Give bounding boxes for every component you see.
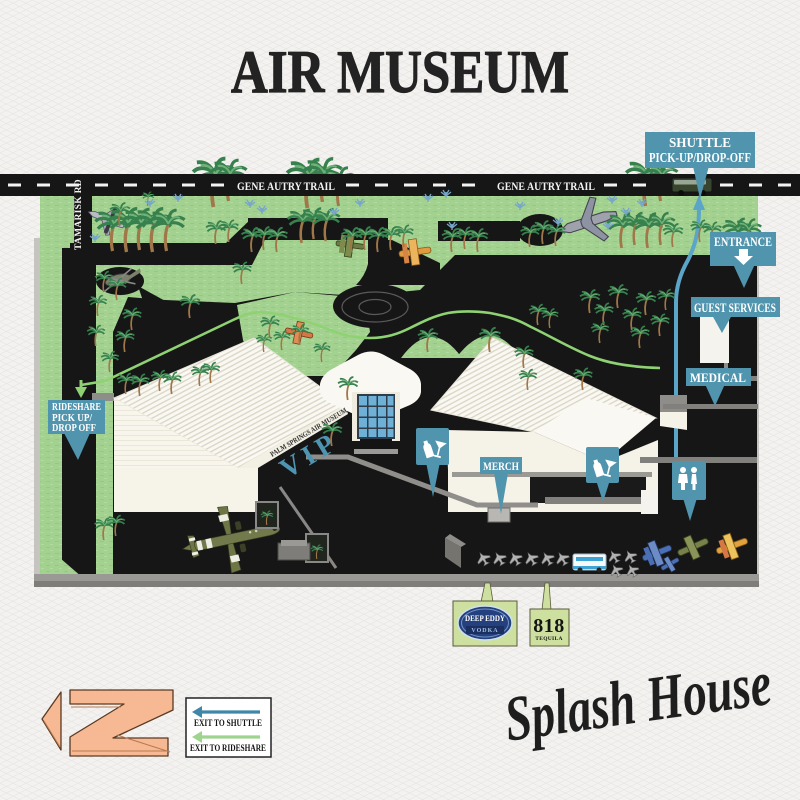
svg-text:MERCH: MERCH (483, 461, 519, 473)
svg-text:RIDESHARE: RIDESHARE (52, 402, 101, 413)
svg-text:PICK-UP/DROP-OFF: PICK-UP/DROP-OFF (649, 150, 751, 165)
svg-text:GUEST SERVICES: GUEST SERVICES (694, 301, 776, 315)
svg-text:EXIT TO RIDESHARE: EXIT TO RIDESHARE (190, 744, 266, 754)
svg-text:MEDICAL: MEDICAL (690, 371, 746, 385)
svg-text:AIR MUSEUM: AIR MUSEUM (231, 39, 569, 105)
svg-text:GENE AUTRY TRAIL: GENE AUTRY TRAIL (237, 181, 335, 193)
svg-text:818: 818 (533, 615, 565, 637)
svg-text:EXIT TO SHUTTLE: EXIT TO SHUTTLE (194, 719, 262, 729)
svg-text:GENE AUTRY TRAIL: GENE AUTRY TRAIL (497, 181, 595, 193)
svg-text:TEQUILA: TEQUILA (535, 636, 562, 642)
svg-text:DROP OFF: DROP OFF (52, 423, 96, 434)
svg-text:TAMARISK RD: TAMARISK RD (74, 179, 84, 250)
svg-text:SHUTTLE: SHUTTLE (669, 135, 731, 150)
svg-text:DEEP EDDY: DEEP EDDY (465, 614, 505, 623)
svg-text:VODKA: VODKA (471, 628, 498, 634)
svg-text:ENTRANCE: ENTRANCE (714, 235, 772, 249)
